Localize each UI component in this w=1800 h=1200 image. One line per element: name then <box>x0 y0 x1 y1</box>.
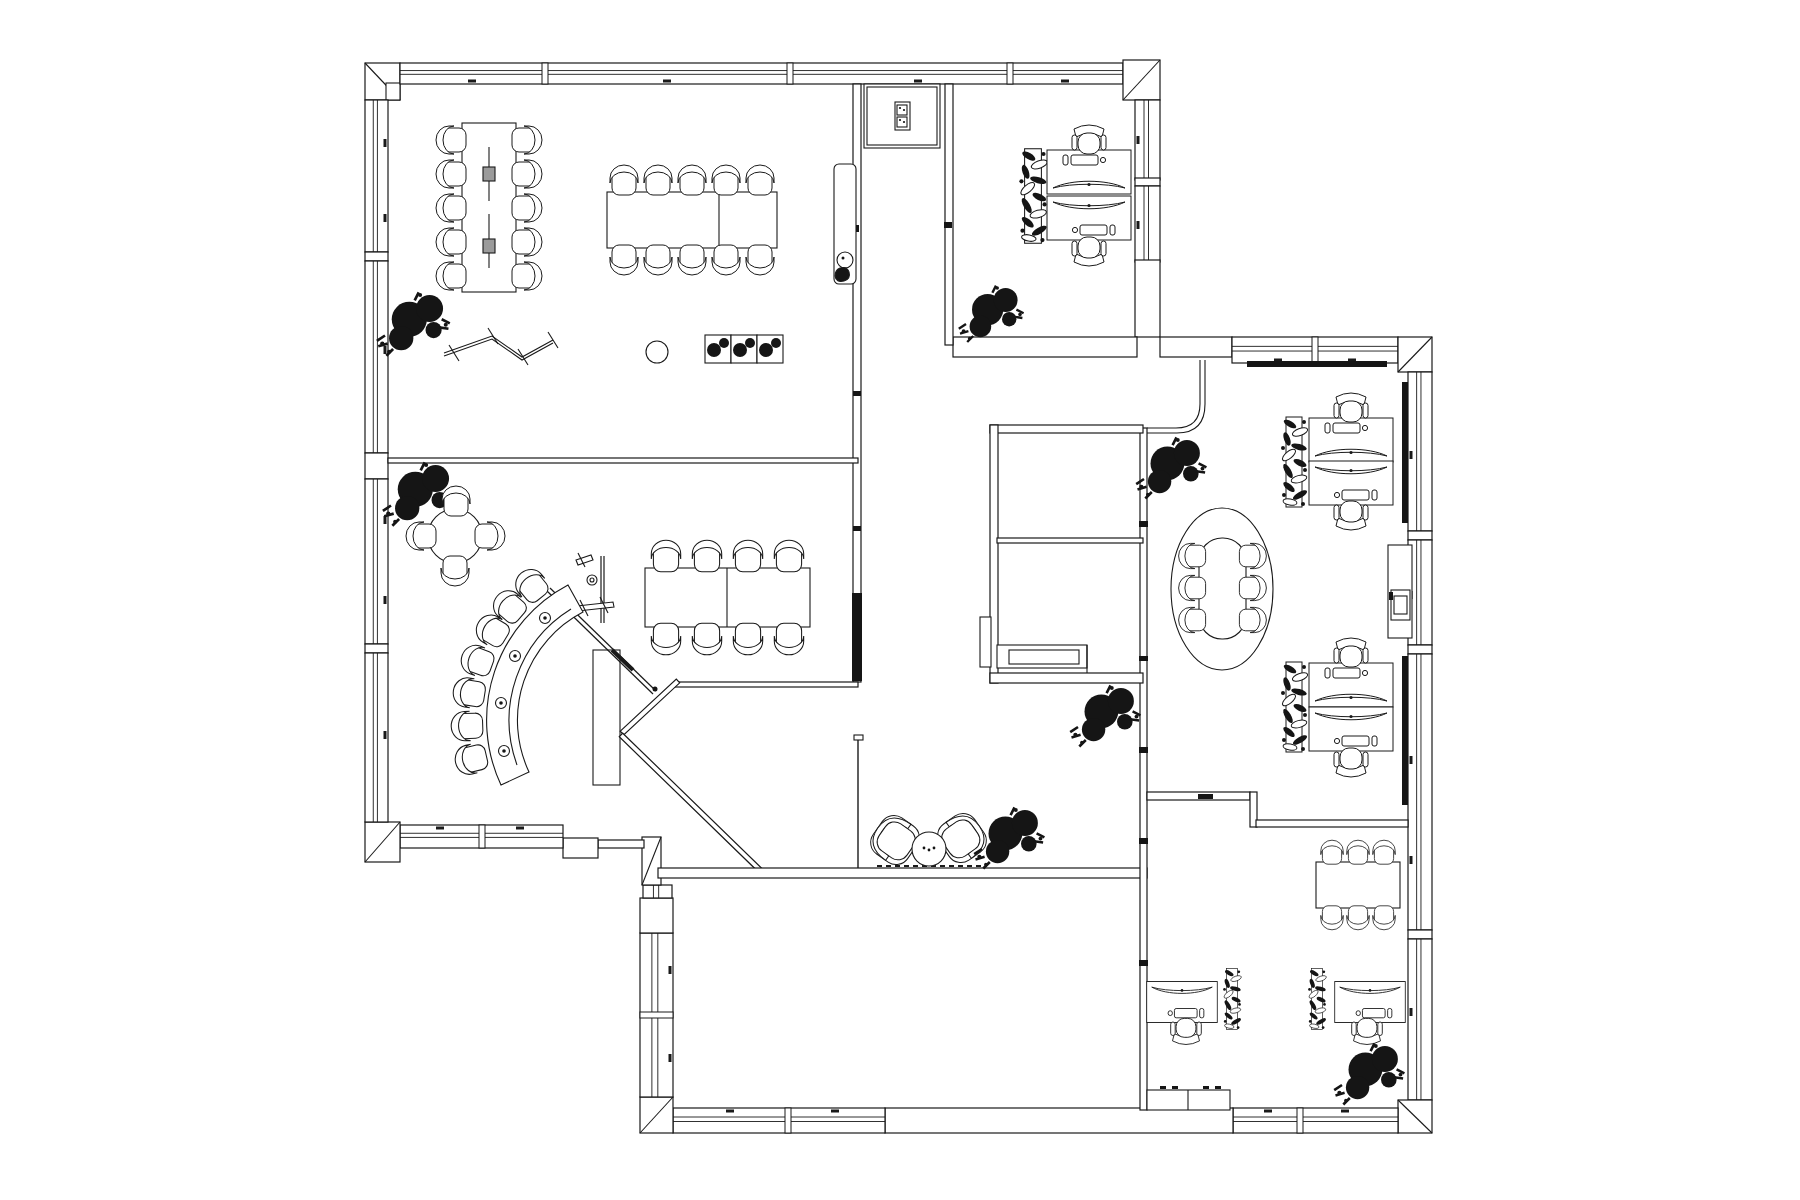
bench-leg <box>449 345 459 361</box>
east-window-wall <box>1408 372 1432 531</box>
window-frame <box>365 100 388 252</box>
whiteboard-rail-north <box>1247 361 1387 367</box>
west-window-wall <box>365 479 388 644</box>
chair-instance <box>678 245 706 275</box>
bench-leg <box>548 332 558 348</box>
east-window-wall <box>1408 654 1432 930</box>
desk-instance <box>1047 196 1131 240</box>
chair-instance <box>746 165 774 195</box>
mullion <box>542 63 548 84</box>
desk-instance <box>1047 150 1131 194</box>
north-window-wall <box>400 63 1123 84</box>
window-tick <box>1264 1110 1272 1113</box>
mullion <box>640 1012 673 1018</box>
south-window-west <box>673 1108 885 1133</box>
chair-instance <box>451 711 484 741</box>
window-tick <box>384 731 387 739</box>
window-tick <box>384 346 387 354</box>
chair-instance <box>712 165 740 195</box>
window-frame <box>673 1108 885 1133</box>
plant-instance <box>959 286 1024 342</box>
plant-top <box>771 338 781 348</box>
south-wall-mid <box>885 1108 1233 1133</box>
chair-instance <box>712 245 740 275</box>
credenza-handle <box>1203 1086 1209 1089</box>
planter-instance <box>1019 149 1048 244</box>
chair-instance <box>1321 840 1343 864</box>
mullion <box>785 1108 791 1133</box>
chair-instance <box>512 160 542 188</box>
chair-instance <box>1179 543 1206 568</box>
window-tick <box>384 139 387 147</box>
chair-instance <box>1373 840 1395 864</box>
lower-west-window-wall <box>643 885 672 898</box>
window-tick <box>831 1110 839 1113</box>
dot <box>903 121 905 123</box>
curved-partition <box>1147 360 1205 433</box>
bench-zigzag <box>444 336 553 357</box>
wall-pier <box>1408 645 1432 654</box>
storage-side-panel <box>980 617 991 667</box>
window-frame <box>1408 654 1432 930</box>
west-window-wall <box>365 261 388 453</box>
wall-pier <box>1408 531 1432 540</box>
partition-mid-west <box>388 458 858 463</box>
mullion <box>1007 63 1013 84</box>
wall-pier <box>365 252 388 261</box>
chair-instance <box>774 540 803 572</box>
desk-instance <box>1335 982 1406 1023</box>
door-marker <box>853 526 861 531</box>
door-marker <box>853 391 861 396</box>
planter-instance <box>1308 968 1327 1029</box>
plant-top <box>733 343 747 357</box>
printer-detail <box>1389 592 1393 600</box>
plant-instance <box>1070 685 1140 746</box>
meeting-table-6 <box>1316 862 1400 908</box>
grommet-dot <box>502 749 506 753</box>
furniture-layer <box>377 84 1412 1110</box>
chair-instance <box>1321 906 1343 930</box>
chair-instance <box>733 540 762 572</box>
dot <box>928 849 931 852</box>
west-window-wall <box>365 653 388 822</box>
chair-instance <box>610 165 638 195</box>
chair-instance <box>692 540 721 572</box>
corridor-east-wall <box>945 84 953 345</box>
dot <box>923 847 926 850</box>
oval-table <box>1199 538 1246 639</box>
window-tick <box>1061 80 1069 83</box>
south-window-east <box>1233 1108 1398 1133</box>
wall-pier <box>563 838 598 858</box>
control-key <box>897 117 907 127</box>
desk-instance <box>1309 707 1393 751</box>
chair-instance <box>733 623 762 655</box>
mullion <box>1297 1108 1303 1133</box>
credenza-handle <box>1172 1086 1178 1089</box>
chair-instance <box>774 623 803 655</box>
easel-bar <box>576 555 593 565</box>
task-instance <box>1334 748 1368 777</box>
chair-instance <box>1239 607 1266 632</box>
chair-instance <box>436 126 466 154</box>
mullion <box>1312 337 1318 363</box>
grommet-dot <box>543 616 547 620</box>
chair-instance <box>610 245 638 275</box>
power-module <box>483 239 495 253</box>
chair-instance <box>1347 906 1369 930</box>
ne-room-south-wall <box>953 337 1137 357</box>
wall-pier <box>1135 178 1160 186</box>
door-marker <box>1198 794 1213 799</box>
door-marker <box>1139 960 1148 966</box>
west-wing-south-window <box>400 825 563 848</box>
floor-plan-canvas <box>0 0 1800 1200</box>
chair-instance <box>692 623 721 655</box>
dot <box>903 109 905 111</box>
chair-instance <box>1239 575 1266 600</box>
ne-room-east-wall <box>1135 100 1160 180</box>
planter-instance <box>1281 417 1309 507</box>
bench-leg <box>488 328 498 344</box>
chair-instance <box>1239 543 1266 568</box>
window-tick <box>726 1110 734 1113</box>
storage-drawer <box>1009 650 1079 664</box>
window-tick <box>436 827 444 830</box>
wall-whiteboard <box>1402 656 1408 805</box>
window-tick <box>1410 756 1413 764</box>
planter-instance <box>1223 968 1242 1029</box>
sink-drain <box>842 257 845 260</box>
partition-cap <box>854 735 863 740</box>
dot <box>899 107 901 109</box>
floor-plan-page <box>0 0 1800 1200</box>
wall-pier <box>365 644 388 653</box>
chair-instance <box>512 194 542 222</box>
chair-instance <box>441 556 469 586</box>
credenza-handle <box>1160 1086 1166 1089</box>
chair-instance <box>651 540 680 572</box>
storage-north-wall <box>990 425 1143 433</box>
chair-instance <box>678 165 706 195</box>
plant-top <box>759 343 773 357</box>
east-wing-north-window <box>1232 337 1398 363</box>
desk-instance <box>1309 418 1393 462</box>
window-tick <box>1410 451 1413 459</box>
pillar <box>593 650 620 785</box>
wall-pier <box>640 898 673 933</box>
power-module <box>483 167 495 181</box>
control-key <box>897 105 907 115</box>
chair-instance <box>644 245 672 275</box>
window-tick <box>1137 221 1140 229</box>
printer-tray <box>1394 596 1407 614</box>
plant-top <box>707 343 721 357</box>
window-tick <box>663 80 671 83</box>
chair-instance <box>644 165 672 195</box>
plant-top <box>719 338 729 348</box>
conference-table-10 <box>607 192 777 248</box>
se-room-north-wall <box>1256 820 1408 827</box>
window-frame <box>1233 1108 1398 1133</box>
grommet-dot <box>499 701 503 705</box>
mullion <box>787 63 793 84</box>
window-tick <box>1410 856 1413 864</box>
task-instance <box>1072 237 1106 266</box>
window-frame <box>643 885 672 898</box>
plant-small <box>835 268 849 282</box>
hall-north-wall <box>658 868 1147 878</box>
west-window-wall <box>365 100 388 252</box>
door-marker <box>944 222 952 228</box>
wall-whiteboard <box>1402 382 1408 523</box>
window-tick <box>516 827 524 830</box>
mullion <box>479 825 485 848</box>
window-tick <box>1137 136 1140 144</box>
sink-basin <box>837 252 853 268</box>
dot <box>933 847 936 850</box>
window-tick <box>669 1054 672 1062</box>
chair-instance <box>436 262 466 290</box>
door-marker <box>1139 747 1148 753</box>
angled-wall <box>620 679 679 735</box>
chair-instance <box>451 676 487 710</box>
desk-instance <box>1147 982 1218 1023</box>
wall-pier <box>365 453 388 479</box>
east-wing-west-wall <box>1140 428 1147 1110</box>
chair-instance <box>436 160 466 188</box>
dark-door-panel <box>852 593 862 681</box>
dot <box>899 119 901 121</box>
stool <box>646 341 668 363</box>
window-tick <box>384 214 387 222</box>
chair-instance <box>457 641 497 679</box>
east-wing-north-wall-solid <box>1160 337 1232 357</box>
plant-instance <box>1334 1043 1404 1104</box>
chair-instance <box>1179 575 1206 600</box>
window-tick <box>1341 1110 1349 1113</box>
plant-top <box>745 338 755 348</box>
chair-instance <box>1347 840 1369 864</box>
corner-nw-inner <box>386 83 400 100</box>
door-marker <box>1139 838 1148 844</box>
window-tick <box>468 80 476 83</box>
desk-instance <box>1309 663 1393 707</box>
window-tick <box>914 80 922 83</box>
storage-divider <box>997 538 1143 543</box>
curved-partition <box>1147 360 1200 428</box>
chair-instance <box>436 194 466 222</box>
chair-instance <box>475 522 505 550</box>
east-window-wall <box>1408 939 1432 1100</box>
wall-node <box>653 687 658 692</box>
door-marker <box>1139 656 1148 661</box>
door-marker <box>1139 521 1148 527</box>
wall-pier <box>1408 930 1432 939</box>
chair-instance <box>436 228 466 256</box>
lower-west-window-wall <box>640 933 673 1097</box>
chair-instance <box>651 623 680 655</box>
chair-instance <box>512 228 542 256</box>
chair-instance <box>512 126 542 154</box>
chair-instance <box>442 486 470 516</box>
ne-room-east-wall <box>1135 186 1160 262</box>
window-frame <box>365 479 388 644</box>
storage-south-wall <box>990 673 1143 683</box>
easel-ring-inner <box>590 578 594 582</box>
window-tick <box>1410 1008 1413 1016</box>
window-tick <box>669 966 672 974</box>
chair-instance <box>1179 607 1206 632</box>
desk-instance <box>1309 461 1393 505</box>
chair-instance <box>746 245 774 275</box>
credenza-handle <box>1215 1086 1221 1089</box>
ne-room-east-wall-solid <box>1135 260 1160 337</box>
step-wall <box>598 840 644 848</box>
chair-instance <box>512 262 542 290</box>
window-tick <box>384 596 387 604</box>
chair-instance <box>1373 906 1395 930</box>
planter-instance <box>1281 662 1309 752</box>
window-frame <box>365 261 388 453</box>
window-frame <box>1408 939 1432 1100</box>
angled-wall <box>619 733 762 873</box>
partition-meeting-south <box>675 682 858 687</box>
window-frame <box>400 63 1123 84</box>
easel-bar <box>577 602 614 611</box>
chair-instance <box>406 522 436 550</box>
chair-instance <box>452 741 489 777</box>
grommet-dot <box>513 654 517 658</box>
